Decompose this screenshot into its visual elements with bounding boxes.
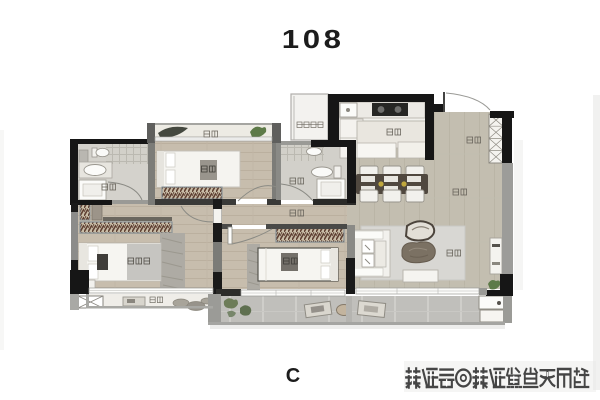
svg-text:C: C (286, 365, 300, 387)
svg-text:108: 108 (282, 25, 345, 54)
